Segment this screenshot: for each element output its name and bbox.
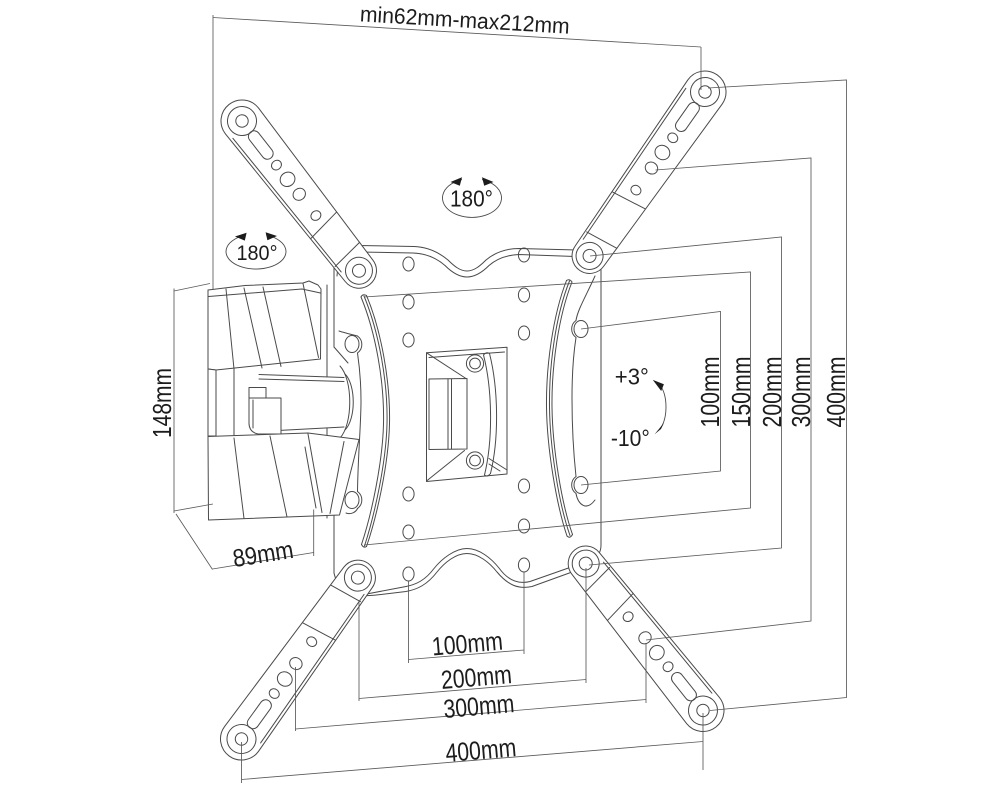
svg-text:148mm: 148mm (147, 368, 177, 438)
svg-text:-10°: -10° (611, 425, 650, 451)
svg-text:200mm: 200mm (757, 357, 787, 428)
svg-text:400mm: 400mm (444, 732, 517, 768)
svg-text:180°: 180° (237, 242, 278, 265)
svg-text:300mm: 300mm (786, 357, 816, 428)
svg-text:+3°: +3° (615, 364, 649, 390)
svg-text:180°: 180° (450, 186, 493, 212)
svg-text:100mm: 100mm (695, 357, 725, 428)
svg-text:100mm: 100mm (431, 626, 504, 662)
svg-text:400mm: 400mm (821, 357, 851, 428)
svg-text:300mm: 300mm (442, 688, 515, 724)
svg-text:150mm: 150mm (726, 357, 756, 428)
